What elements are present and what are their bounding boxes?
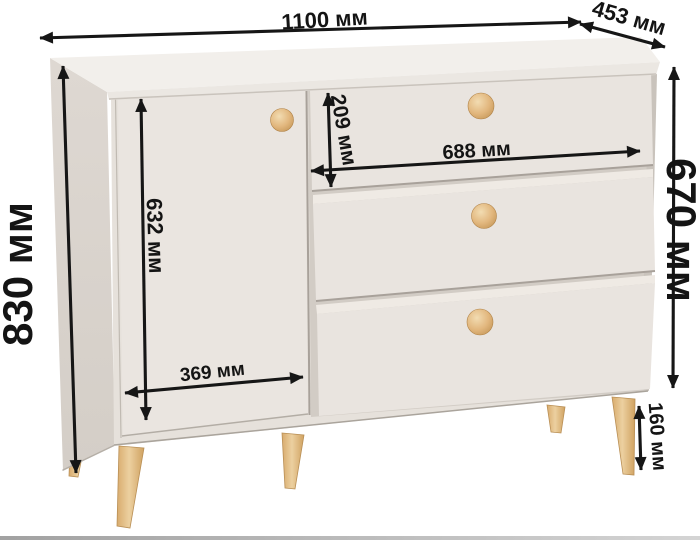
drawer-1-knob	[468, 93, 494, 119]
door-height-label: 632 мм	[142, 198, 170, 274]
door-knob	[271, 109, 294, 132]
photo-bottom-edge	[0, 536, 700, 540]
drawer-2-knob	[472, 204, 497, 229]
overall-height-label: 830 мм	[0, 202, 41, 346]
body-height-label: 670 мм	[658, 158, 700, 302]
drawer-width-label: 688 мм	[442, 138, 512, 164]
overall-width-label: 1100 мм	[281, 4, 369, 34]
dimension-diagram-canvas: 1100 мм 453 мм 830 мм 670 мм 632 мм 369 …	[0, 0, 700, 540]
product-dimension-diagram: 1100 мм 453 мм 830 мм 670 мм 632 мм 369 …	[0, 0, 700, 540]
dim-leg-height-arrow	[639, 406, 641, 470]
drawer-3-knob	[467, 309, 493, 335]
